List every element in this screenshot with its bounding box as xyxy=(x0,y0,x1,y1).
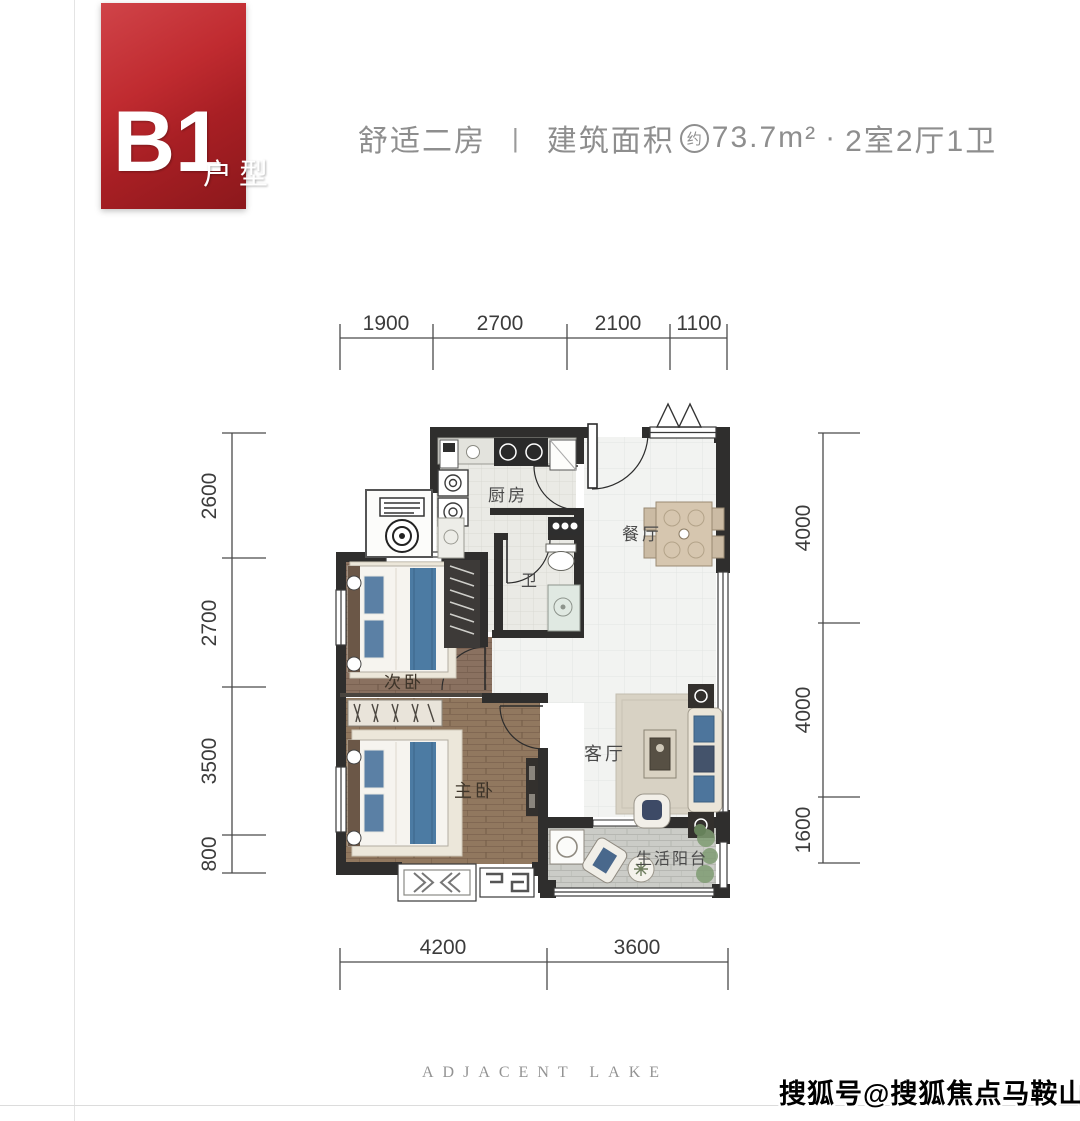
master-bed xyxy=(348,740,448,846)
dim-left-1: 2600 xyxy=(198,473,221,520)
armchair xyxy=(634,794,670,828)
small-window-symbol xyxy=(480,868,534,897)
dim-left-2: 2700 xyxy=(198,600,221,647)
washing-machine xyxy=(386,520,418,552)
dim-bottom-2: 3600 xyxy=(614,936,661,959)
master-side-table xyxy=(347,750,361,764)
master-side-table xyxy=(347,831,361,845)
laundry-sink xyxy=(438,518,464,558)
balcony-rail-right xyxy=(720,842,727,888)
dim-top-1: 1900 xyxy=(363,312,410,335)
balcony-washer xyxy=(550,830,584,864)
entry-window xyxy=(650,427,716,438)
bedroom2-wardrobe xyxy=(444,560,480,648)
dim-bottom-1: 4200 xyxy=(420,936,467,959)
label-bath: 卫 xyxy=(521,573,540,590)
dim-top-3: 2100 xyxy=(595,312,642,335)
stove xyxy=(494,438,548,466)
label-master: 主卧 xyxy=(454,781,496,801)
bedroom2-bed xyxy=(348,566,448,672)
dim-top-4: 1100 xyxy=(676,312,721,335)
bedroom2-side-table xyxy=(347,657,361,671)
bedroom2-side-table xyxy=(347,576,361,590)
balcony-rail-bottom xyxy=(554,888,714,896)
dim-right-2: 4000 xyxy=(792,687,815,734)
label-dining: 餐厅 xyxy=(622,525,662,544)
brand-text: ADJACENT LAKE xyxy=(340,1064,750,1082)
label-balcony: 生活阳台 xyxy=(636,850,708,868)
master-window xyxy=(336,767,346,832)
side-table xyxy=(688,684,714,708)
label-living: 客厅 xyxy=(584,744,626,764)
label-bedroom2: 次卧 xyxy=(384,673,424,692)
dim-right-3: 1600 xyxy=(792,807,815,854)
master-closet xyxy=(348,700,442,726)
sofa xyxy=(688,708,722,812)
oven-unit xyxy=(548,517,582,535)
bedroom2-window xyxy=(336,590,346,645)
equipment-platform xyxy=(366,490,432,557)
dim-right-1: 4000 xyxy=(792,505,815,552)
dim-left-4: 800 xyxy=(198,836,221,871)
shower xyxy=(548,585,580,631)
label-kitchen: 厨房 xyxy=(488,486,528,505)
dim-top-2: 2700 xyxy=(477,312,524,335)
watermark-text: 搜狐号@搜狐焦点马鞍山站 xyxy=(779,1072,1080,1111)
kitchen-sink-bowl xyxy=(467,446,480,459)
dim-left-3: 3500 xyxy=(198,738,221,785)
coffee-table xyxy=(644,730,676,778)
master-bay-window xyxy=(398,864,476,901)
entry-plants xyxy=(657,404,701,427)
floor-plan: 厨房 餐厅 卫 次卧 主卧 客厅 生活阳台 1900 xyxy=(0,0,1080,1121)
toilet xyxy=(546,544,576,571)
master-tv-console xyxy=(526,758,538,816)
